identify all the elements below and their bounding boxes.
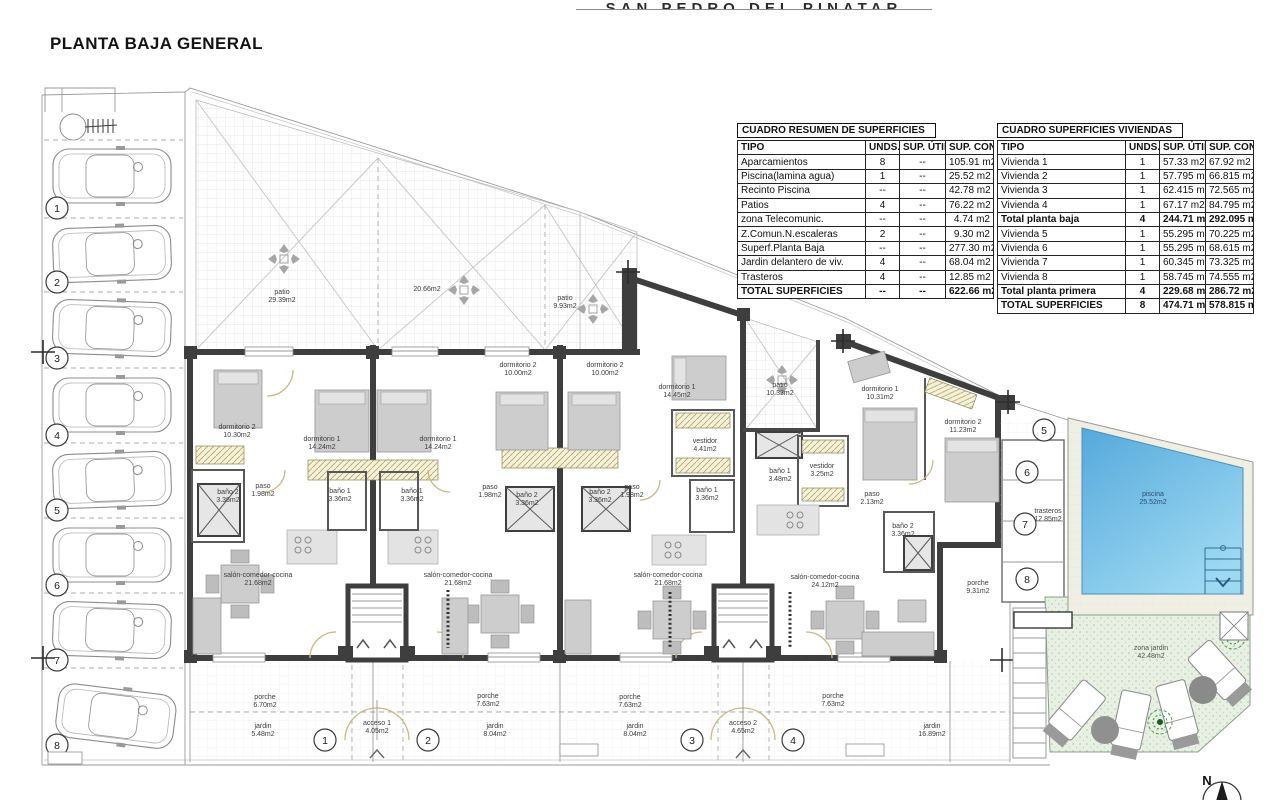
svg-text:3.36m2: 3.36m2 <box>328 496 351 503</box>
column-header: TIPO <box>738 141 866 155</box>
svg-text:4: 4 <box>54 430 60 442</box>
table-row: Recinto Piscina----42.78 m2 <box>738 184 994 198</box>
resumen-table: TIPOUNDS.SUP. ÚTILSUP. CONST.Aparcamient… <box>737 140 994 299</box>
svg-text:porche: porche <box>619 694 641 701</box>
svg-text:6: 6 <box>1024 467 1030 479</box>
svg-text:jardin: jardin <box>922 723 940 730</box>
north-compass: N <box>1202 773 1241 800</box>
svg-text:salón-comedor-cocina: salón-comedor-cocina <box>634 572 703 579</box>
svg-text:8: 8 <box>1024 574 1030 586</box>
pool-water <box>1082 428 1243 594</box>
svg-text:baño 2: baño 2 <box>516 492 538 499</box>
svg-text:baño 1: baño 1 <box>329 488 351 495</box>
svg-text:10.00m2: 10.00m2 <box>504 370 531 377</box>
table-row: TOTAL SUPERFICIES----622.66 m2 <box>738 284 994 298</box>
column-header: SUP. CONST. <box>1206 141 1254 155</box>
svg-text:7: 7 <box>1022 519 1028 531</box>
svg-text:acceso 1: acceso 1 <box>363 720 391 727</box>
svg-text:trasteros: trasteros <box>1034 508 1062 515</box>
svg-text:1.98m2: 1.98m2 <box>620 492 643 499</box>
column-header: SUP. CONST. <box>946 141 994 155</box>
svg-text:8: 8 <box>54 740 60 752</box>
table-row: Total planta baja4244.71 m2292.095 m2 <box>998 212 1254 226</box>
svg-text:paso: paso <box>624 484 639 491</box>
svg-text:paso: paso <box>864 491 879 498</box>
svg-text:14.24m2: 14.24m2 <box>308 444 335 451</box>
svg-text:jardin: jardin <box>625 723 643 730</box>
garden-table <box>1091 716 1119 744</box>
svg-text:1.98m2: 1.98m2 <box>478 492 501 499</box>
svg-text:7.63m2: 7.63m2 <box>821 701 844 708</box>
svg-text:baño 1: baño 1 <box>696 487 718 494</box>
svg-text:21.68m2: 21.68m2 <box>654 580 681 587</box>
garden-table <box>1189 676 1217 704</box>
svg-text:6: 6 <box>54 580 60 592</box>
svg-text:3.48m2: 3.48m2 <box>768 476 791 483</box>
column-header: SUP. ÚTIL <box>900 141 946 155</box>
svg-text:7: 7 <box>54 655 60 667</box>
svg-text:8.04m2: 8.04m2 <box>483 731 506 738</box>
svg-text:baño 2: baño 2 <box>589 489 611 496</box>
table-row: Vivienda 6155.295 m268.615 m2 <box>998 241 1254 255</box>
compass-n-label: N <box>1202 773 1211 788</box>
shower-tray <box>1220 612 1248 640</box>
svg-text:25.52m2: 25.52m2 <box>1139 499 1166 506</box>
svg-text:3.25m2: 3.25m2 <box>810 471 833 478</box>
svg-text:11.23m2: 11.23m2 <box>950 427 977 434</box>
svg-text:7.63m2: 7.63m2 <box>476 701 499 708</box>
svg-text:24.12m2: 24.12m2 <box>811 582 838 589</box>
svg-text:vestidor: vestidor <box>810 463 835 470</box>
svg-text:dormitorio 1: dormitorio 1 <box>862 386 899 393</box>
svg-text:2.13m2: 2.13m2 <box>860 499 883 506</box>
table-viviendas-title: CUADRO SUPERFICIES VIVIENDAS <box>997 123 1183 138</box>
svg-text:baño 2: baño 2 <box>892 523 914 530</box>
svg-text:5.48m2: 5.48m2 <box>251 731 274 738</box>
svg-text:2: 2 <box>425 735 431 747</box>
svg-text:dormitorio 1: dormitorio 1 <box>659 384 696 391</box>
svg-text:salón-comedor-cocina: salón-comedor-cocina <box>791 574 860 581</box>
svg-text:10.31m2: 10.31m2 <box>866 394 893 401</box>
svg-text:salón-comedor-cocina: salón-comedor-cocina <box>424 572 493 579</box>
svg-text:20.66m2: 20.66m2 <box>413 286 440 293</box>
svg-text:dormitorio 2: dormitorio 2 <box>500 362 537 369</box>
svg-text:dormitorio 1: dormitorio 1 <box>304 436 341 443</box>
svg-text:porche: porche <box>477 693 499 700</box>
garden-zone <box>1013 597 1254 760</box>
gate-icon <box>85 119 117 133</box>
table-row: Vivienda 3162.415 m272.565 m2 <box>998 184 1254 198</box>
svg-text:9.31m2: 9.31m2 <box>966 588 989 595</box>
svg-text:3: 3 <box>54 353 60 365</box>
svg-text:1: 1 <box>54 203 60 215</box>
table-row: Aparcamientos8--105.91 m2 <box>738 155 994 169</box>
table-superficies-viviendas: CUADRO SUPERFICIES VIVIENDAS TIPOUNDS.SU… <box>997 123 1254 314</box>
table-row: Vivienda 4167.17 m284.795 m2 <box>998 198 1254 212</box>
svg-text:porche: porche <box>967 580 989 587</box>
svg-text:4: 4 <box>790 735 796 747</box>
table-row: TOTAL SUPERFICIES8474.71 m2578.815 m2 <box>998 299 1254 313</box>
svg-text:dormitorio 2: dormitorio 2 <box>219 424 256 431</box>
svg-text:jardin: jardin <box>253 723 271 730</box>
svg-text:8.04m2: 8.04m2 <box>623 731 646 738</box>
parking-area: 1 2 3 4 5 6 7 8 <box>44 146 183 756</box>
svg-text:3.36m2: 3.36m2 <box>695 495 718 502</box>
svg-text:zona jardin: zona jardin <box>1134 645 1168 652</box>
svg-text:6.70m2: 6.70m2 <box>253 702 276 709</box>
svg-text:7.63m2: 7.63m2 <box>618 702 641 709</box>
svg-text:3.36m2: 3.36m2 <box>400 496 423 503</box>
table-row: Vivienda 7160.345 m273.325 m2 <box>998 256 1254 270</box>
svg-text:patio: patio <box>772 382 787 389</box>
table-row: Trasteros4--12.85 m2 <box>738 270 994 284</box>
svg-text:dormitorio 2: dormitorio 2 <box>945 419 982 426</box>
table-row: zona Telecomunic.----4.74 m2 <box>738 212 994 226</box>
table-row: Jardin delantero de viv.4--68.04 m2 <box>738 256 994 270</box>
table-row: Z.Comun.N.escaleras2--9.30 m2 <box>738 227 994 241</box>
svg-text:14.45m2: 14.45m2 <box>663 392 690 399</box>
svg-text:4.65m2: 4.65m2 <box>731 728 754 735</box>
svg-text:9.93m2: 9.93m2 <box>553 303 576 310</box>
svg-text:paso: paso <box>482 484 497 491</box>
svg-text:porche: porche <box>822 693 844 700</box>
svg-text:3.36m2: 3.36m2 <box>216 497 239 504</box>
svg-text:baño 1: baño 1 <box>769 468 791 475</box>
svg-text:16.89m2: 16.89m2 <box>918 731 945 738</box>
svg-text:porche: porche <box>254 694 276 701</box>
svg-text:10.30m2: 10.30m2 <box>223 432 250 439</box>
svg-text:21.68m2: 21.68m2 <box>444 580 471 587</box>
svg-text:piscina: piscina <box>1142 491 1164 498</box>
table-resumen-title: CUADRO RESUMEN DE SUPERFICIES <box>737 123 936 138</box>
column-header: UNDS. <box>1126 141 1160 155</box>
svg-text:10.33m2: 10.33m2 <box>766 390 793 397</box>
svg-text:paso: paso <box>255 483 270 490</box>
svg-text:1.98m2: 1.98m2 <box>251 491 274 498</box>
pool-area <box>1068 418 1253 615</box>
table-row: Superf.Planta Baja----277.30 m2 <box>738 241 994 255</box>
column-header: UNDS. <box>866 141 900 155</box>
table-resumen-superficies: CUADRO RESUMEN DE SUPERFICIES TIPOUNDS.S… <box>737 123 994 299</box>
svg-text:vestidor: vestidor <box>693 438 718 445</box>
table-row: Patios4--76.22 m2 <box>738 198 994 212</box>
viviendas-table: TIPOUNDS.SUP. ÚTILSUP. CONST.Vivienda 11… <box>997 140 1254 314</box>
svg-text:dormitorio 2: dormitorio 2 <box>587 362 624 369</box>
svg-text:1: 1 <box>322 735 328 747</box>
column-header: TIPO <box>998 141 1126 155</box>
svg-text:3.36m2: 3.36m2 <box>515 500 538 507</box>
svg-text:3: 3 <box>689 735 695 747</box>
svg-text:29.39m2: 29.39m2 <box>268 297 295 304</box>
table-row: Vivienda 8158.745 m274.555 m2 <box>998 270 1254 284</box>
floor-plan-sheet: SAN PEDRO DEL PINATAR PLANTA BAJA GENERA… <box>0 0 1280 800</box>
svg-text:2: 2 <box>54 277 60 289</box>
svg-text:patio: patio <box>274 289 289 296</box>
svg-text:5: 5 <box>1041 425 1047 437</box>
svg-text:5: 5 <box>54 505 60 517</box>
svg-text:3.36m2: 3.36m2 <box>588 497 611 504</box>
svg-text:acceso 2: acceso 2 <box>729 720 757 727</box>
svg-text:14.24m2: 14.24m2 <box>424 444 451 451</box>
column-header: SUP. ÚTIL <box>1160 141 1206 155</box>
table-row: Vivienda 2157.795 m266.815 m2 <box>998 169 1254 183</box>
svg-text:12.85m2: 12.85m2 <box>1034 516 1061 523</box>
svg-text:42.48m2: 42.48m2 <box>1137 653 1164 660</box>
svg-text:4.41m2: 4.41m2 <box>693 446 716 453</box>
svg-text:patio: patio <box>557 295 572 302</box>
svg-text:3.36m2: 3.36m2 <box>891 531 914 538</box>
svg-text:salón-comedor-cocina: salón-comedor-cocina <box>224 572 293 579</box>
garden-bench <box>1014 612 1072 628</box>
table-row: Piscina(lamina agua)1--25.52 m2 <box>738 169 994 183</box>
svg-text:dormitorio 1: dormitorio 1 <box>420 436 457 443</box>
svg-text:baño 2: baño 2 <box>217 489 239 496</box>
svg-text:4.05m2: 4.05m2 <box>365 728 388 735</box>
svg-text:10.00m2: 10.00m2 <box>591 370 618 377</box>
table-row: Vivienda 5155.295 m270.225 m2 <box>998 227 1254 241</box>
table-row: Vivienda 1157.33 m267.92 m2 <box>998 155 1254 169</box>
floor-plan-drawing: 1 2 3 4 5 6 7 8 <box>0 0 1280 800</box>
svg-text:21.68m2: 21.68m2 <box>244 580 271 587</box>
table-row: Total planta primera4229.68 m2286.72 m2 <box>998 284 1254 298</box>
car-icon <box>52 146 178 753</box>
garden-steps <box>1013 608 1046 758</box>
svg-text:baño 1: baño 1 <box>401 488 423 495</box>
svg-text:jardin: jardin <box>485 723 503 730</box>
